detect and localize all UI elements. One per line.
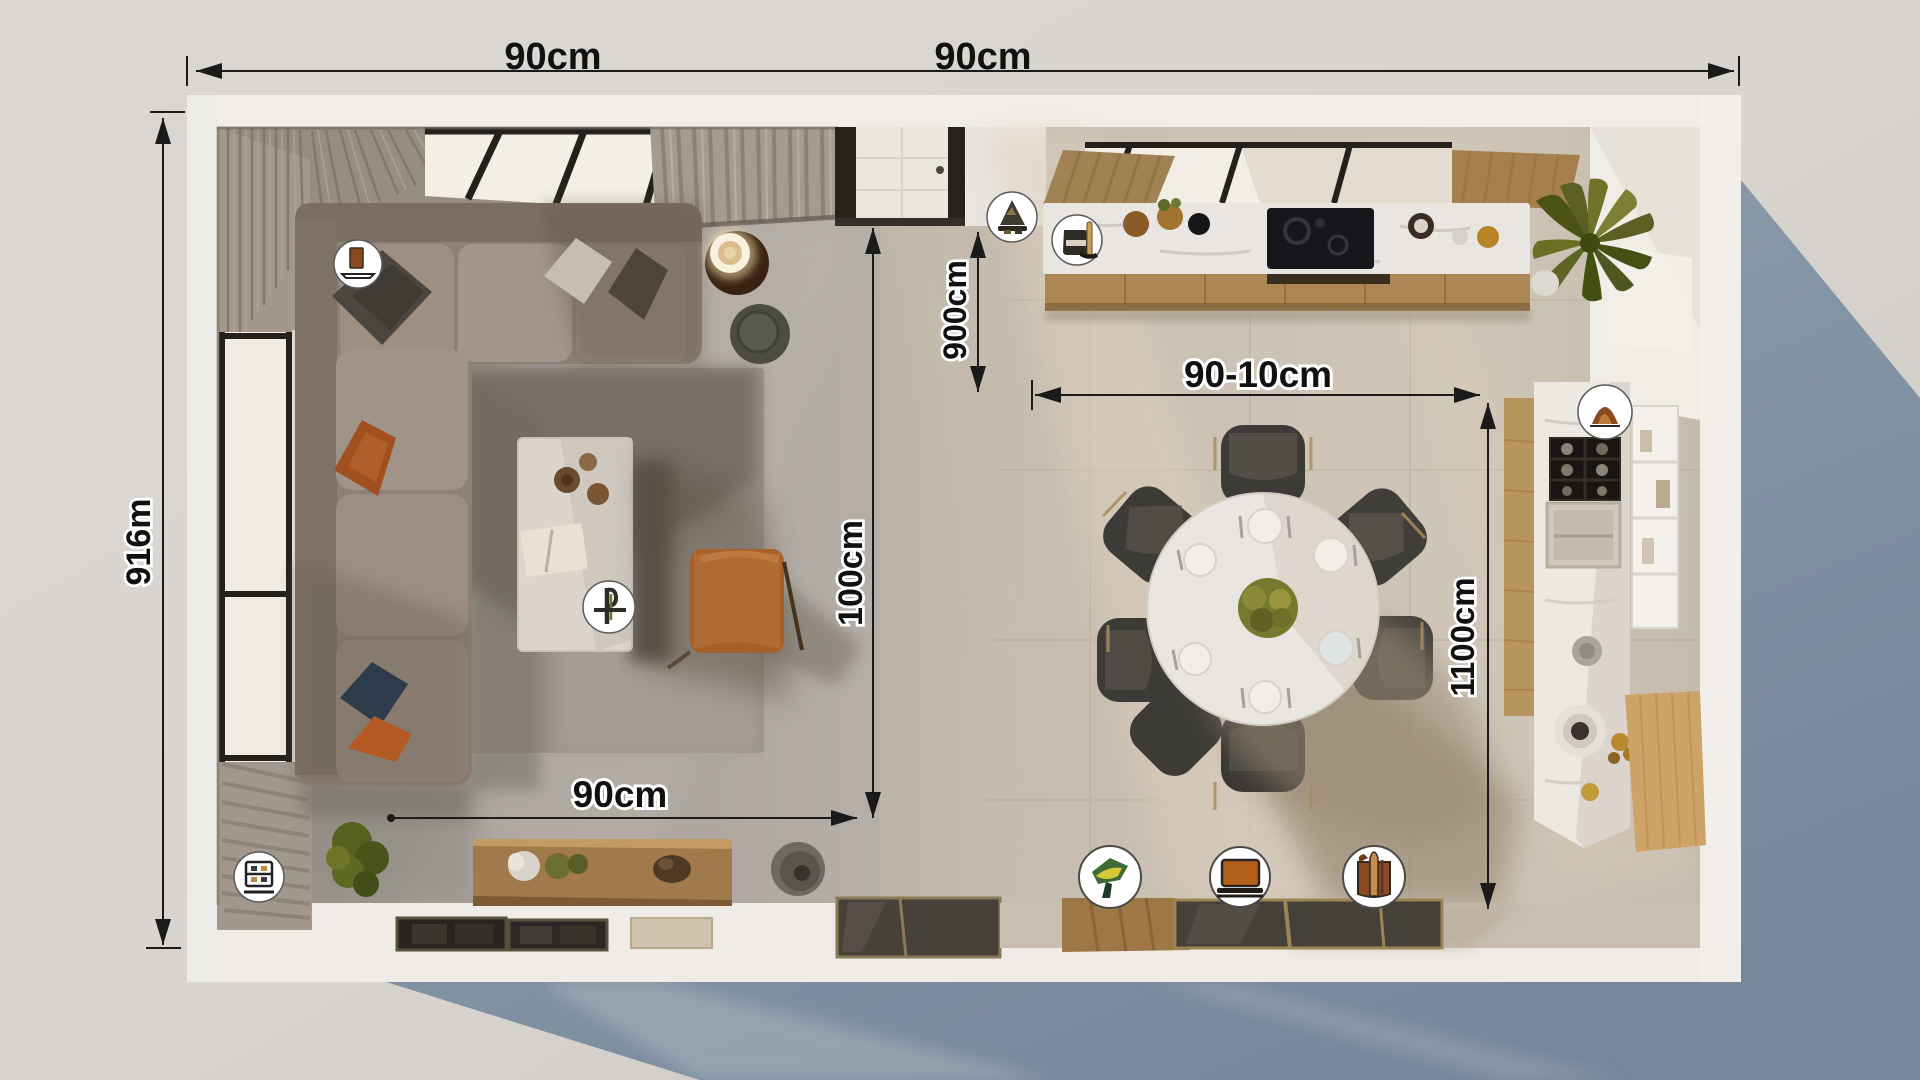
svg-text:1100cm: 1100cm (1444, 577, 1481, 696)
svg-text:90-10cm: 90-10cm (1184, 354, 1332, 395)
svg-text:900cm: 900cm (937, 260, 973, 360)
svg-text:90cm: 90cm (573, 774, 668, 815)
svg-text:90cm: 90cm (934, 36, 1031, 78)
svg-text:100cm: 100cm (832, 520, 870, 626)
svg-text:90cm: 90cm (504, 36, 601, 78)
svg-text:916m: 916m (120, 499, 158, 586)
